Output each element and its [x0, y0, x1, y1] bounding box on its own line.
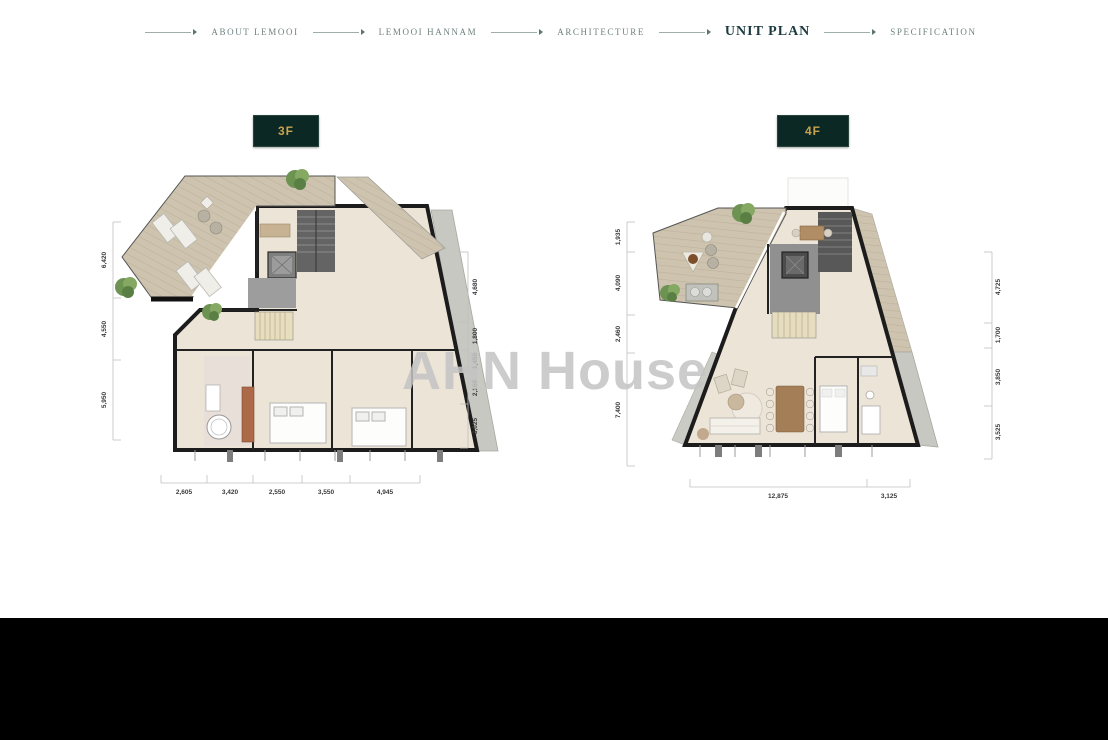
- svg-text:2,550: 2,550: [269, 489, 286, 496]
- svg-text:4,550: 4,550: [101, 320, 108, 337]
- floor-tag-4f: 4F: [777, 115, 849, 147]
- svg-text:3,550: 3,550: [318, 489, 335, 496]
- roof-outline: [788, 178, 848, 208]
- floor-tag-3f: 3F: [253, 115, 319, 147]
- dimensions-bottom: 12,875 3,125: [690, 479, 910, 500]
- svg-text:4,725: 4,725: [995, 278, 1002, 295]
- svg-text:1,700: 1,700: [995, 326, 1002, 343]
- bathroom: [204, 356, 254, 446]
- svg-text:6,420: 6,420: [101, 251, 108, 268]
- svg-text:5,950: 5,950: [101, 391, 108, 408]
- stair-core: [297, 210, 335, 272]
- nav-separator: [145, 29, 197, 35]
- svg-text:3,850: 3,850: [995, 368, 1002, 385]
- nav-item-specification[interactable]: SPECIFICATION: [890, 27, 976, 37]
- stairwell: [772, 312, 816, 338]
- svg-text:7,400: 7,400: [615, 401, 622, 418]
- nav-separator: [491, 29, 543, 35]
- nav-item-about-lemooi[interactable]: ABOUT LEMOOI: [211, 27, 298, 37]
- svg-text:3,525: 3,525: [995, 423, 1002, 440]
- arrow-dot-icon: [193, 29, 197, 35]
- page: ABOUT LEMOOI LEMOOI HANNAM ARCHITECTURE …: [0, 0, 1108, 740]
- dimensions-bottom: 2,605 3,420 2,550 3,550 4,945: [161, 475, 420, 496]
- arrow-dot-icon: [539, 29, 543, 35]
- svg-text:4,945: 4,945: [377, 489, 394, 496]
- svg-text:4,090: 4,090: [615, 274, 622, 291]
- bed: [820, 386, 847, 432]
- dimensions-right: 4,725 1,700 3,850 3,525: [984, 252, 1002, 459]
- watermark-text: AHN House: [402, 340, 708, 402]
- svg-text:3,125: 3,125: [881, 493, 898, 500]
- nav-separator: [824, 29, 876, 35]
- nav-separator: [313, 29, 365, 35]
- nav-item-lemooi-hannam[interactable]: LEMOOI HANNAM: [379, 27, 478, 37]
- svg-text:3,420: 3,420: [222, 489, 239, 496]
- floorplan-3f: 6,420 4,550 5,950 4,680 1,800 1,450 2,16…: [100, 160, 500, 510]
- arrow-dot-icon: [361, 29, 365, 35]
- stairwell: [255, 312, 293, 340]
- svg-text:4,680: 4,680: [472, 278, 479, 295]
- hall-core: [248, 278, 296, 308]
- nav-separator: [659, 29, 711, 35]
- svg-text:1,935: 1,935: [615, 228, 622, 245]
- deck-kitchenette: [686, 284, 718, 301]
- elevator: [268, 252, 296, 278]
- svg-text:2,605: 2,605: [176, 489, 193, 496]
- svg-text:3,025: 3,025: [472, 417, 479, 434]
- main-navigation: ABOUT LEMOOI LEMOOI HANNAM ARCHITECTURE …: [0, 18, 1108, 46]
- dimensions-left: 6,420 4,550 5,950: [101, 222, 121, 440]
- arrow-dot-icon: [707, 29, 711, 35]
- stair-core: [818, 212, 852, 272]
- svg-text:12,875: 12,875: [768, 493, 788, 500]
- bottom-letterbox-bar: [0, 618, 1108, 740]
- nav-item-unit-plan[interactable]: UNIT PLAN: [725, 24, 810, 40]
- nav-item-architecture[interactable]: ARCHITECTURE: [557, 27, 645, 37]
- elevator: [782, 252, 808, 278]
- floorplan-4f: 1,935 4,090 2,460 7,400 4,725 1,700 3,85…: [600, 160, 1040, 510]
- desk: [260, 224, 290, 237]
- arrow-dot-icon: [872, 29, 876, 35]
